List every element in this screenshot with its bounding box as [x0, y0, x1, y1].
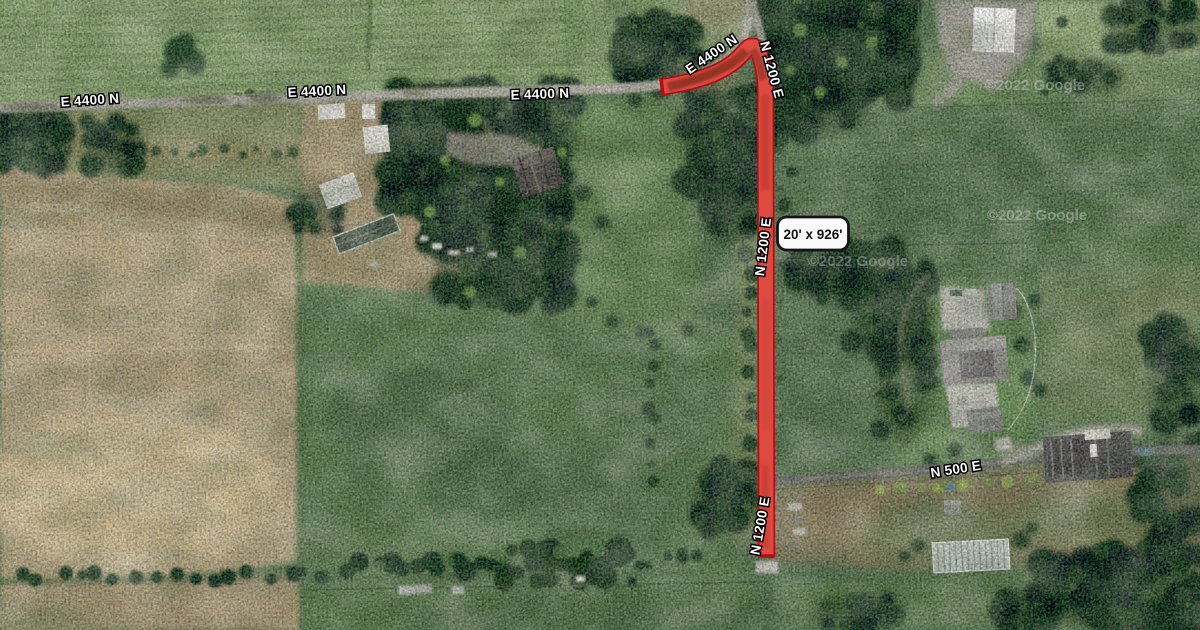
svg-text:E 4400 N: E 4400 N: [287, 82, 346, 100]
svg-text:20' x 926': 20' x 926': [784, 227, 843, 242]
svg-text:©2022 Google: ©2022 Google: [985, 77, 1085, 94]
svg-text:©2022 Google: ©2022 Google: [808, 253, 908, 270]
svg-text:Google: Google: [29, 199, 81, 216]
svg-text:E 4400 N: E 4400 N: [510, 86, 569, 103]
svg-text:©2022 Google: ©2022 Google: [987, 207, 1087, 224]
